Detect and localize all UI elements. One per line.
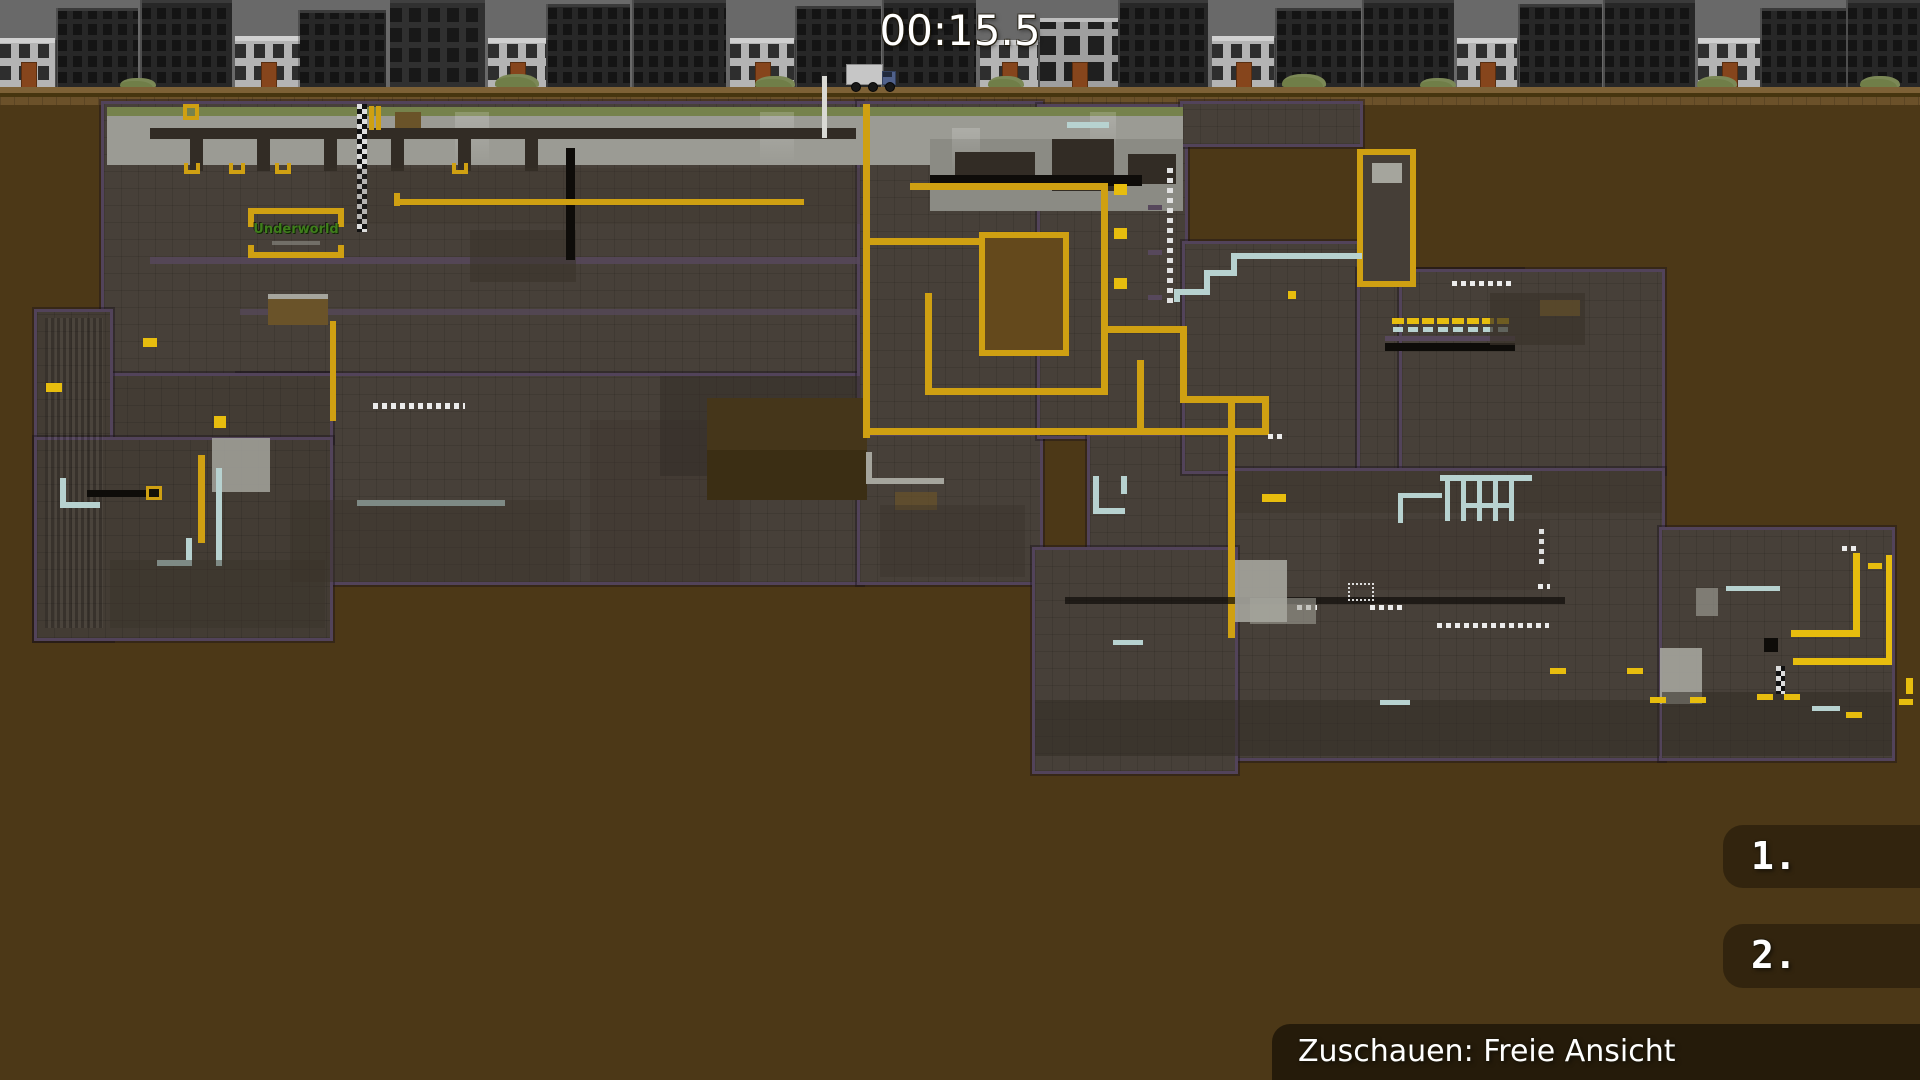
map-tile: [1453, 327, 1463, 332]
map-tile: [1093, 508, 1125, 514]
map-tile: [1452, 281, 1514, 286]
map-tile: [880, 505, 1025, 577]
map-tile: [1650, 697, 1666, 703]
map-tile: [395, 112, 421, 128]
map-tile: [985, 238, 1063, 350]
map-tile: [330, 168, 860, 224]
level-map: [0, 0, 1920, 1080]
map-tile: [1812, 706, 1840, 711]
map-tile: [143, 338, 157, 347]
map-tile: [275, 163, 291, 174]
map-tile: [1793, 658, 1892, 665]
map-tile: [925, 293, 932, 393]
map-tile: [1764, 638, 1778, 652]
map-tile: [1035, 700, 1660, 756]
map-tile: [394, 199, 804, 205]
map-tile: [1148, 250, 1162, 255]
rank-number: 1.: [1751, 834, 1797, 878]
map-tile: [868, 428, 1269, 435]
map-tile: [248, 208, 344, 214]
map-tile: [1906, 678, 1913, 694]
map-tile: [1180, 396, 1268, 403]
map-sign-underworld: Underworld: [248, 222, 344, 237]
map-tile: [1696, 588, 1718, 616]
map-tile: [925, 388, 1108, 395]
map-tile: [229, 163, 245, 174]
map-tile: [1509, 481, 1514, 521]
map-tile: [1791, 630, 1860, 637]
map-tile: [1174, 289, 1180, 302]
map-tile: [1237, 253, 1362, 259]
map-tile: [1148, 295, 1162, 300]
map-tile: [1886, 555, 1892, 665]
map-tile: [470, 230, 576, 282]
map-tile: [1437, 318, 1449, 324]
map-tile: [268, 299, 328, 325]
map-tile: [1393, 327, 1403, 332]
map-tile: [248, 252, 344, 258]
map-tile: [60, 502, 100, 508]
map-tile: [1461, 481, 1466, 521]
map-tile: [257, 139, 270, 171]
map-tile: [391, 139, 404, 171]
map-tile: [1392, 318, 1404, 324]
map-tile: [1853, 553, 1860, 637]
map-tile: [198, 455, 205, 543]
map-tile: [248, 245, 254, 252]
map-tile: [1180, 326, 1187, 403]
map-tile: [1114, 228, 1127, 239]
map-tile: [1250, 598, 1316, 624]
map-tile: [1340, 520, 1550, 590]
map-tile: [369, 106, 374, 130]
map-tile: [183, 104, 199, 120]
map-tile: [1262, 494, 1286, 502]
map-tile: [1167, 167, 1173, 303]
map-tile: [373, 403, 465, 409]
map-tile: [1105, 326, 1187, 333]
map-tile: [107, 107, 1183, 116]
map-tile: [452, 163, 468, 174]
map-tile: [216, 468, 222, 566]
map-tile: [1468, 327, 1478, 332]
map-tile: [1868, 563, 1882, 569]
map-tile: [1445, 481, 1450, 521]
map-tile: [1114, 184, 1127, 195]
rank-number: 2.: [1751, 933, 1797, 977]
map-tile: [1461, 503, 1514, 508]
map-tile: [1408, 327, 1418, 332]
map-tile: [866, 478, 944, 484]
map-tile: [184, 163, 200, 174]
map-tile: [707, 450, 867, 500]
map-tile: [240, 309, 860, 315]
map-tile: [1842, 546, 1856, 551]
map-tile: [1137, 360, 1144, 435]
map-tile: [1538, 584, 1550, 589]
map-tile: [290, 500, 570, 582]
map-tile: [1067, 122, 1109, 128]
map-tile: [1407, 318, 1419, 324]
map-tile: [324, 139, 337, 171]
map-tile: [1423, 327, 1433, 332]
map-tile: [1846, 712, 1862, 718]
scoreboard-rank-row: 2.: [1723, 924, 1920, 988]
map-tile: [1398, 493, 1442, 498]
map-tile: [1539, 528, 1544, 564]
map-tile: [1540, 300, 1580, 316]
map-tile: [146, 486, 162, 500]
map-tile: [1452, 318, 1464, 324]
map-tile: [1370, 605, 1402, 610]
map-tile: [1437, 623, 1549, 628]
map-tile: [1690, 697, 1706, 703]
race-timer: 00:15.5: [0, 6, 1920, 55]
map-tile: [1268, 434, 1284, 439]
map-tile: [822, 76, 827, 138]
map-tile: [1726, 586, 1780, 591]
map-tile: [110, 376, 330, 440]
map-tile: [1477, 481, 1482, 521]
map-tile: [1776, 666, 1785, 694]
map-tile: [150, 128, 856, 139]
map-tile: [214, 416, 226, 428]
map-tile: [376, 106, 381, 130]
map-tile: [910, 183, 1108, 190]
map-tile: [1380, 700, 1410, 705]
spectator-bar: Zuschauen: Freie Ansicht: [1272, 1024, 1920, 1080]
map-tile: [1467, 318, 1479, 324]
map-tile: [1438, 327, 1448, 332]
map-tile: [1493, 481, 1498, 521]
spectator-mode-label: Zuschauen: Freie Ansicht: [1298, 1034, 1676, 1069]
map-tile: [1183, 104, 1360, 144]
scoreboard-rank-row: 1.: [1723, 825, 1920, 888]
map-tile: [1627, 668, 1643, 674]
map-tile: [1899, 699, 1913, 705]
map-tile: [46, 383, 62, 392]
map-tile: [868, 238, 988, 245]
map-tile: [1372, 163, 1402, 183]
map-tile: [1348, 583, 1374, 601]
map-tile: [1440, 475, 1532, 481]
map-tile: [1113, 640, 1143, 645]
map-tile: [1422, 318, 1434, 324]
map-tile: [1114, 278, 1127, 289]
map-tile: [338, 245, 344, 252]
map-tile: [863, 104, 870, 438]
map-tile: [272, 241, 320, 245]
map-tile: [330, 321, 336, 421]
map-tile: [1262, 396, 1269, 434]
map-tile: [1288, 291, 1296, 299]
map-tile: [1398, 493, 1403, 523]
map-tile: [1784, 694, 1800, 700]
map-tile: [1148, 205, 1162, 210]
game-viewport[interactable]: Underworld 00:15.5 1. 2. Zuschauen: Frei…: [0, 0, 1920, 1080]
map-tile: [45, 318, 103, 628]
map-tile: [1757, 694, 1773, 700]
map-tile: [1101, 183, 1108, 395]
map-tile: [1121, 476, 1127, 494]
map-tile: [87, 490, 151, 497]
map-tile: [1550, 668, 1566, 674]
map-tile: [525, 139, 538, 171]
